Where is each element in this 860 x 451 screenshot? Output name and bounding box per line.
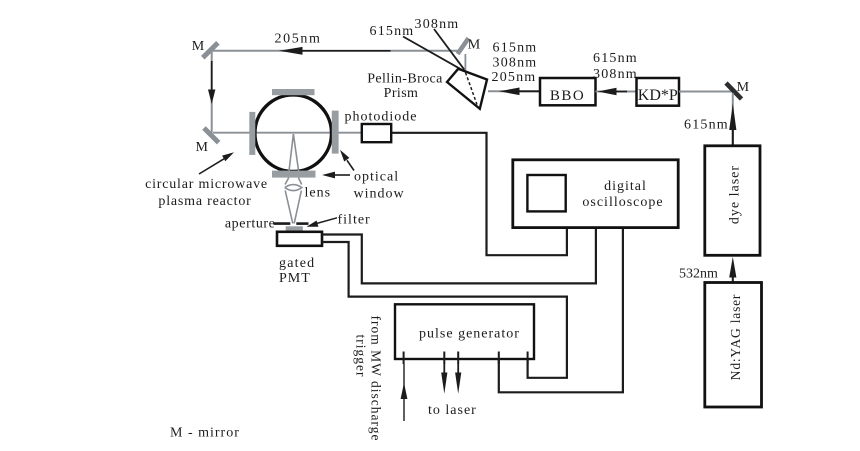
- svg-text:gated: gated: [279, 256, 315, 271]
- svg-text:532nm: 532nm: [679, 267, 718, 282]
- svg-text:plasma reactor: plasma reactor: [158, 194, 251, 209]
- svg-text:trigger: trigger: [354, 335, 369, 378]
- svg-text:615nm: 615nm: [593, 51, 638, 66]
- svg-text:lens: lens: [305, 186, 332, 201]
- svg-text:aperture: aperture: [225, 217, 276, 232]
- svg-text:oscilloscope: oscilloscope: [582, 195, 663, 210]
- svg-text:from MW discharge: from MW discharge: [369, 316, 384, 442]
- svg-text:KD*P: KD*P: [638, 87, 678, 104]
- svg-text:M - mirror: M - mirror: [170, 426, 240, 441]
- svg-text:308nm: 308nm: [415, 17, 460, 32]
- svg-text:BBO: BBO: [550, 88, 585, 104]
- svg-text:615nm: 615nm: [370, 24, 415, 39]
- svg-text:M: M: [737, 80, 750, 95]
- svg-text:circular microwave: circular microwave: [145, 177, 268, 192]
- svg-text:photodiode: photodiode: [345, 109, 418, 124]
- svg-text:308nm: 308nm: [593, 67, 638, 82]
- svg-text:to laser: to laser: [428, 403, 477, 418]
- svg-text:dye laser: dye laser: [728, 165, 743, 224]
- svg-text:M: M: [468, 38, 481, 53]
- svg-text:pulse generator: pulse generator: [419, 327, 520, 342]
- svg-text:PMT: PMT: [279, 271, 311, 286]
- svg-text:615nm: 615nm: [684, 117, 729, 132]
- svg-text:308nm: 308nm: [493, 55, 538, 70]
- svg-text:Prism: Prism: [384, 86, 419, 101]
- svg-text:615nm: 615nm: [493, 41, 538, 56]
- svg-text:optical: optical: [354, 170, 399, 185]
- svg-text:205nm: 205nm: [492, 70, 537, 85]
- svg-text:filter: filter: [338, 213, 371, 228]
- svg-text:digital: digital: [604, 179, 647, 194]
- svg-text:M: M: [195, 140, 208, 155]
- svg-text:Nd:YAG laser: Nd:YAG laser: [728, 294, 743, 380]
- svg-text:Pellin-Broca: Pellin-Broca: [367, 71, 443, 86]
- svg-text:205nm: 205nm: [275, 32, 322, 47]
- svg-text:M: M: [192, 39, 205, 54]
- svg-text:window: window: [354, 187, 405, 202]
